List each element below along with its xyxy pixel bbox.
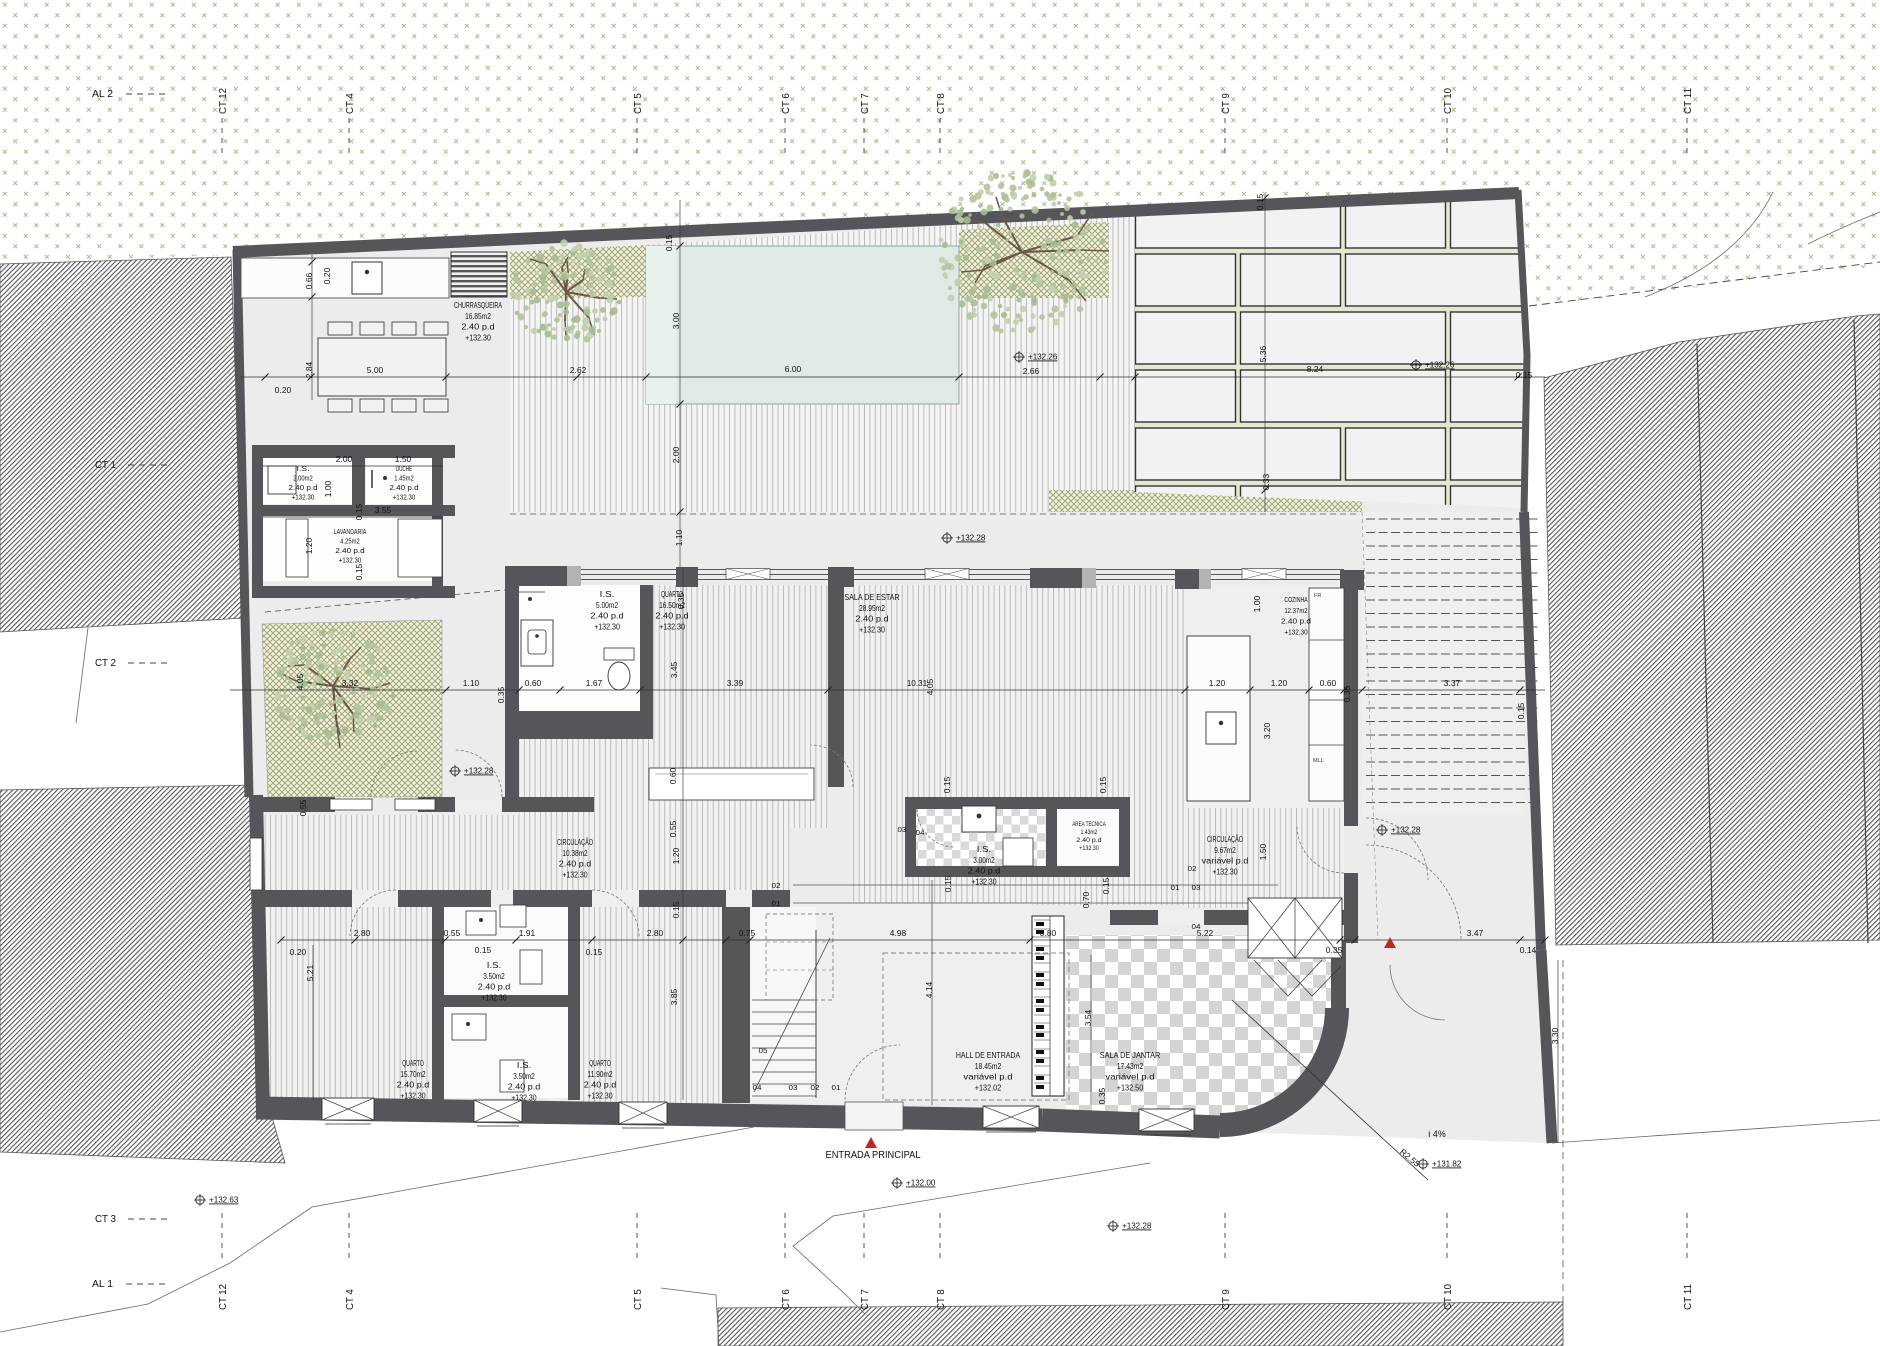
svg-text:02: 02 <box>811 1085 820 1092</box>
svg-text:+132.26: +132.26 <box>1425 360 1455 370</box>
svg-text:+132.30: +132.30 <box>393 493 416 502</box>
svg-text:CT 4: CT 4 <box>345 1289 356 1310</box>
svg-text:03: 03 <box>898 827 907 834</box>
svg-text:+132.30: +132.30 <box>400 1091 426 1100</box>
svg-text:6.00: 6.00 <box>785 365 802 374</box>
svg-text:0.35: 0.35 <box>1326 946 1343 955</box>
svg-text:1.50: 1.50 <box>1259 843 1268 860</box>
svg-text:CT 6: CT 6 <box>781 1289 792 1310</box>
svg-text:3.32: 3.32 <box>342 679 359 688</box>
svg-text:0.15: 0.15 <box>475 946 492 955</box>
svg-text:1.50: 1.50 <box>395 455 412 464</box>
svg-text:4.05: 4.05 <box>926 678 935 695</box>
svg-text:0.15: 0.15 <box>672 901 681 918</box>
svg-text:+132.28: +132.28 <box>1122 1221 1152 1231</box>
svg-text:CT 1: CT 1 <box>95 460 116 471</box>
svg-text:QUARTO: QUARTO <box>402 1059 424 1068</box>
svg-text:2.40 p.d: 2.40 p.d <box>288 483 317 492</box>
svg-text:2.80: 2.80 <box>354 929 371 938</box>
svg-text:I.S.: I.S. <box>297 464 310 473</box>
svg-text:2.40 p.d: 2.40 p.d <box>335 546 364 555</box>
svg-text:0.33: 0.33 <box>1262 473 1271 490</box>
svg-text:+132.28: +132.28 <box>1391 825 1421 835</box>
svg-text:CT 3: CT 3 <box>95 1214 116 1225</box>
svg-text:28.95m2: 28.95m2 <box>859 604 885 613</box>
svg-text:1.20: 1.20 <box>305 537 314 554</box>
svg-text:0.20: 0.20 <box>275 386 292 395</box>
svg-text:0.60: 0.60 <box>525 679 542 688</box>
svg-text:3.45: 3.45 <box>670 661 679 678</box>
svg-text:AREA TECNICA: AREA TECNICA <box>1072 821 1106 828</box>
svg-text:2.84: 2.84 <box>305 361 314 378</box>
svg-text:5.21: 5.21 <box>306 964 315 981</box>
svg-text:I.S.: I.S. <box>517 1061 531 1070</box>
svg-text:11.90m2: 11.90m2 <box>587 1070 613 1079</box>
svg-text:+132.02: +132.02 <box>975 1082 1002 1092</box>
svg-text:0.20: 0.20 <box>290 948 307 957</box>
svg-text:3.50m2: 3.50m2 <box>483 972 505 981</box>
svg-text:+132.30: +132.30 <box>859 625 885 634</box>
svg-text:03: 03 <box>789 1085 798 1092</box>
svg-text:0.80: 0.80 <box>1040 929 1057 938</box>
svg-text:CT 5: CT 5 <box>633 93 644 114</box>
svg-text:CT 4: CT 4 <box>345 93 356 114</box>
svg-text:+132.30: +132.30 <box>971 877 997 886</box>
svg-text:variável p.d: variável p.d <box>1105 1072 1154 1082</box>
svg-text:+132.30: +132.30 <box>562 870 588 879</box>
svg-text:4.05: 4.05 <box>296 673 305 690</box>
svg-text:CT 12: CT 12 <box>218 1284 229 1310</box>
svg-text:+132.30: +132.30 <box>292 493 315 502</box>
svg-text:+132.30: +132.30 <box>465 333 491 342</box>
svg-text:AL 2: AL 2 <box>92 89 113 100</box>
svg-text:16.85m2: 16.85m2 <box>465 312 491 321</box>
svg-text:CT 5: CT 5 <box>633 1289 644 1310</box>
svg-text:2.80: 2.80 <box>647 929 664 938</box>
svg-text:15.70m2: 15.70m2 <box>400 1070 426 1079</box>
svg-text:8.24: 8.24 <box>1307 365 1324 374</box>
svg-text:5.00: 5.00 <box>367 366 384 375</box>
svg-text:0.15: 0.15 <box>665 234 674 251</box>
svg-text:3.37: 3.37 <box>1444 679 1461 688</box>
svg-text:02: 02 <box>1188 866 1197 873</box>
svg-text:3.50m2: 3.50m2 <box>513 1072 535 1081</box>
svg-text:0.55: 0.55 <box>669 820 678 837</box>
svg-text:3.54: 3.54 <box>1084 1009 1093 1026</box>
svg-text:CT 11: CT 11 <box>1683 1284 1694 1310</box>
svg-text:10.31: 10.31 <box>907 679 928 688</box>
svg-text:1.45m2: 1.45m2 <box>394 474 413 483</box>
svg-text:0.35: 0.35 <box>497 686 506 703</box>
svg-text:2.40 p.d: 2.40 p.d <box>559 860 591 869</box>
svg-text:1.00: 1.00 <box>324 480 333 497</box>
svg-text:18.45m2: 18.45m2 <box>975 1061 1002 1071</box>
svg-text:9.67m2: 9.67m2 <box>1214 846 1236 855</box>
svg-text:0.15: 0.15 <box>355 563 364 580</box>
svg-text:05: 05 <box>759 1048 768 1055</box>
svg-text:I.S.: I.S. <box>600 590 615 599</box>
svg-text:CIRCULAÇÃO: CIRCULAÇÃO <box>1207 835 1243 844</box>
svg-text:12.37m2: 12.37m2 <box>1284 606 1307 615</box>
svg-text:+132.00: +132.00 <box>906 1178 936 1188</box>
svg-text:2.40 p.d: 2.40 p.d <box>461 323 495 332</box>
svg-text:2.40 p.d: 2.40 p.d <box>397 1081 429 1090</box>
svg-text:ENTRADA PRINCIPAL: ENTRADA PRINCIPAL <box>826 1149 921 1161</box>
svg-text:CHURRASQUEIRA: CHURRASQUEIRA <box>454 301 502 310</box>
svg-text:0.15: 0.15 <box>944 875 953 892</box>
svg-text:CT 8: CT 8 <box>936 1289 947 1310</box>
svg-text:CT 12: CT 12 <box>218 88 229 114</box>
svg-text:02: 02 <box>772 883 781 890</box>
svg-text:0.70: 0.70 <box>1082 891 1091 908</box>
svg-text:0.55: 0.55 <box>444 929 461 938</box>
svg-text:+132.30: +132.30 <box>1212 867 1238 876</box>
svg-text:01: 01 <box>772 901 781 908</box>
svg-text:+132.28: +132.28 <box>956 533 986 543</box>
svg-text:+132.30: +132.30 <box>659 622 685 631</box>
svg-text:2.40 p.d: 2.40 p.d <box>1281 617 1311 626</box>
svg-text:3.39: 3.39 <box>727 679 744 688</box>
svg-text:5.36: 5.36 <box>1259 345 1268 362</box>
svg-text:2.40 p.d: 2.40 p.d <box>478 983 510 992</box>
svg-text:+132.30: +132.30 <box>339 556 362 565</box>
svg-text:I.S.: I.S. <box>977 845 991 854</box>
svg-text:2.00m2: 2.00m2 <box>293 474 312 483</box>
svg-text:2.00: 2.00 <box>336 455 353 464</box>
svg-text:4.98: 4.98 <box>890 929 907 938</box>
svg-text:+132.30: +132.30 <box>511 1093 537 1102</box>
svg-text:CT 8: CT 8 <box>936 93 947 114</box>
svg-text:+132.30: +132.30 <box>594 622 620 631</box>
svg-text:3.00: 3.00 <box>672 312 681 329</box>
svg-text:1.91: 1.91 <box>519 929 536 938</box>
svg-text:i 4%: i 4% <box>1428 1129 1446 1139</box>
svg-text:2.66: 2.66 <box>1023 367 1040 376</box>
svg-text:2.40 p.d: 2.40 p.d <box>389 483 418 492</box>
svg-text:01: 01 <box>832 1085 841 1092</box>
svg-text:2.40 p.d: 2.40 p.d <box>584 1081 616 1090</box>
svg-text:03: 03 <box>1192 885 1201 892</box>
svg-text:3.20: 3.20 <box>1263 722 1272 739</box>
svg-text:CT 2: CT 2 <box>95 658 116 669</box>
svg-text:3.55: 3.55 <box>375 506 392 515</box>
svg-text:+132.63: +132.63 <box>209 1195 239 1205</box>
svg-text:0.15: 0.15 <box>1102 877 1111 894</box>
svg-text:10.38m2: 10.38m2 <box>562 849 588 858</box>
svg-text:0.15: 0.15 <box>1099 776 1108 793</box>
svg-text:2.40 p.d: 2.40 p.d <box>1076 837 1102 844</box>
svg-text:I.S.: I.S. <box>487 961 501 970</box>
svg-text:AL 1: AL 1 <box>92 1279 113 1290</box>
svg-text:1.67: 1.67 <box>586 679 603 688</box>
svg-text:0.15: 0.15 <box>1516 371 1533 380</box>
svg-text:0.20: 0.20 <box>323 267 332 284</box>
svg-text:+132.30: +132.30 <box>481 993 507 1002</box>
svg-text:COZINHA: COZINHA <box>1284 595 1307 604</box>
svg-text:2.00: 2.00 <box>672 446 681 463</box>
svg-text:3.00m2: 3.00m2 <box>973 856 995 865</box>
svg-text:2.62: 2.62 <box>570 366 587 375</box>
svg-text:LAVANDARIA: LAVANDARIA <box>334 527 367 536</box>
svg-text:CT 10: CT 10 <box>1443 1284 1454 1310</box>
svg-text:CT 9: CT 9 <box>1221 1289 1232 1310</box>
svg-text:2.40 p.d: 2.40 p.d <box>855 615 889 624</box>
svg-text:CT 9: CT 9 <box>1221 93 1232 114</box>
svg-text:0.35: 0.35 <box>1098 1087 1107 1104</box>
svg-text:3.47: 3.47 <box>1467 929 1484 938</box>
svg-text:0.75: 0.75 <box>739 929 756 938</box>
svg-text:CT 6: CT 6 <box>781 93 792 114</box>
svg-text:3.85: 3.85 <box>670 988 679 1005</box>
svg-text:CT 10: CT 10 <box>1443 88 1454 114</box>
svg-text:1.20: 1.20 <box>672 847 681 864</box>
svg-text:0.60: 0.60 <box>1320 679 1337 688</box>
svg-text:2.40 p.d: 2.40 p.d <box>508 1083 540 1092</box>
svg-text:3.30: 3.30 <box>1551 1027 1560 1044</box>
svg-text:+132.30: +132.30 <box>587 1091 613 1100</box>
svg-text:+132.28: +132.28 <box>464 766 494 776</box>
svg-text:04: 04 <box>1192 924 1201 931</box>
svg-text:SALA DE JANTAR: SALA DE JANTAR <box>1100 1050 1161 1060</box>
svg-text:5.00m2: 5.00m2 <box>596 601 618 610</box>
svg-text:SALA DE ESTAR: SALA DE ESTAR <box>844 593 899 602</box>
svg-text:+132.30: +132.30 <box>1284 627 1307 636</box>
svg-text:+131.82: +131.82 <box>1432 1159 1462 1169</box>
svg-text:CT 7: CT 7 <box>860 93 871 114</box>
svg-text:1.00: 1.00 <box>1253 595 1262 612</box>
svg-text:4.25m2: 4.25m2 <box>340 537 359 546</box>
svg-text:CT 7: CT 7 <box>860 1289 871 1310</box>
svg-text:+132.50: +132.50 <box>1117 1082 1144 1092</box>
svg-text:0.55: 0.55 <box>299 799 308 816</box>
svg-text:QUARTO: QUARTO <box>589 1059 611 1068</box>
svg-text:CT 11: CT 11 <box>1683 88 1694 114</box>
svg-text:17.43m2: 17.43m2 <box>1117 1061 1144 1071</box>
svg-text:+132.26: +132.26 <box>1028 352 1058 362</box>
svg-text:04: 04 <box>753 1085 762 1092</box>
svg-text:0.35: 0.35 <box>677 592 686 609</box>
svg-text:DUCHE: DUCHE <box>396 464 412 473</box>
svg-text:+132.30: +132.30 <box>1079 845 1099 852</box>
svg-text:2.40 p.d: 2.40 p.d <box>655 612 689 621</box>
svg-text:1.20: 1.20 <box>1271 679 1288 688</box>
svg-text:variável p.d: variável p.d <box>963 1072 1012 1082</box>
svg-text:0.60: 0.60 <box>669 767 678 784</box>
svg-text:0.35: 0.35 <box>1343 685 1352 702</box>
svg-text:04: 04 <box>916 830 925 837</box>
svg-text:FR: FR <box>1314 593 1321 599</box>
svg-text:variável p.d: variável p.d <box>1202 857 1249 866</box>
svg-text:HALL DE ENTRADA: HALL DE ENTRADA <box>956 1050 1021 1060</box>
svg-text:MLL: MLL <box>1313 758 1324 764</box>
svg-text:0.15: 0.15 <box>355 503 364 520</box>
svg-text:2.40 p.d: 2.40 p.d <box>968 867 1000 876</box>
svg-text:0.15: 0.15 <box>1256 193 1265 210</box>
svg-text:0.66: 0.66 <box>305 272 314 289</box>
svg-text:0.15: 0.15 <box>943 776 952 793</box>
svg-text:CIRCULAÇÃO: CIRCULAÇÃO <box>557 838 593 847</box>
svg-text:0.14: 0.14 <box>1520 946 1537 955</box>
svg-text:01: 01 <box>1171 885 1180 892</box>
svg-text:1.20: 1.20 <box>1209 679 1226 688</box>
svg-text:4.14: 4.14 <box>925 981 934 998</box>
svg-text:1.10: 1.10 <box>675 529 684 546</box>
svg-text:0.15: 0.15 <box>1517 702 1526 719</box>
svg-text:1.10: 1.10 <box>463 679 480 688</box>
svg-text:1.43m2: 1.43m2 <box>1081 829 1098 836</box>
svg-text:0.15: 0.15 <box>586 948 603 957</box>
svg-text:2.40 p.d: 2.40 p.d <box>590 612 624 621</box>
